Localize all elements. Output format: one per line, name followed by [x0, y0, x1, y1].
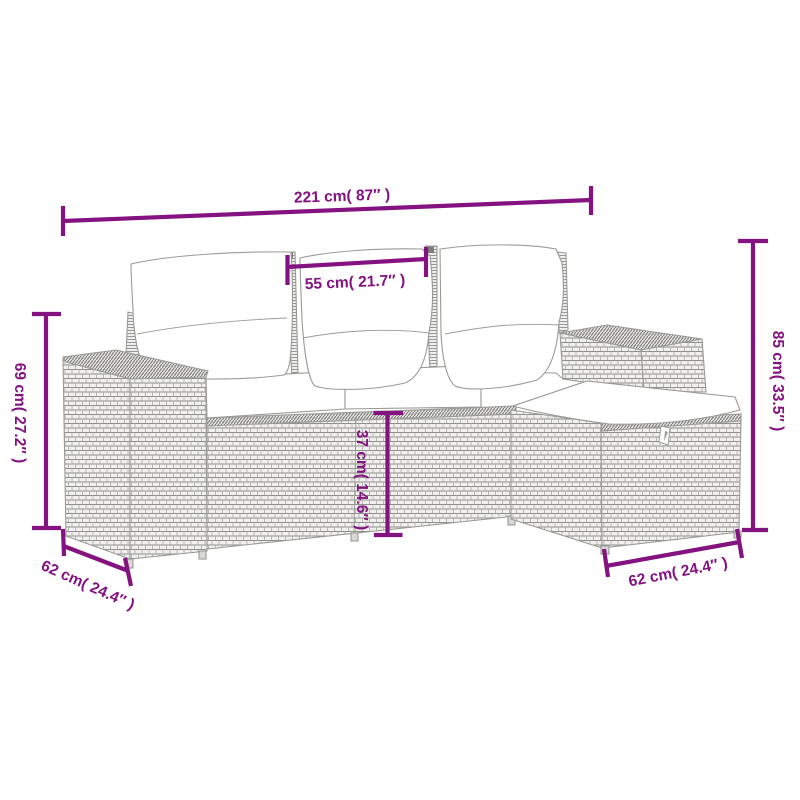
svg-text:85 cm( 33.5″ ): 85 cm( 33.5″ )	[769, 331, 786, 431]
svg-text:69 cm( 27.2″ ): 69 cm( 27.2″ )	[11, 363, 28, 463]
svg-text:37 cm( 14.6″ ): 37 cm( 14.6″ )	[353, 430, 370, 530]
svg-text:221 cm( 87″ ): 221 cm( 87″ )	[294, 186, 391, 206]
